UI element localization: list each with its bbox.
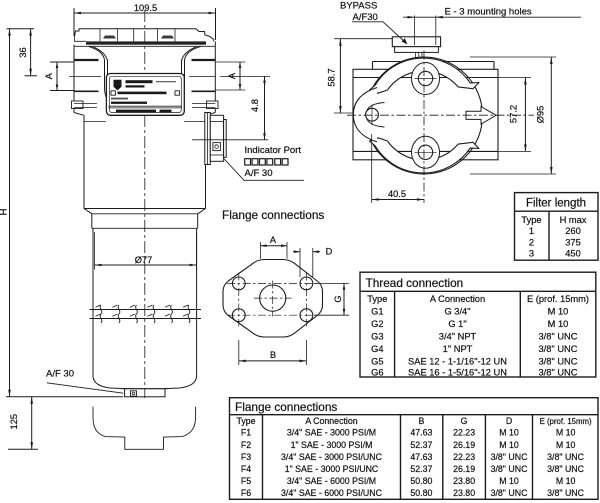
svg-text:36: 36 (18, 47, 28, 57)
svg-text:Type: Type (367, 294, 387, 304)
svg-text:G1: G1 (371, 307, 383, 317)
svg-text:M 10: M 10 (499, 440, 519, 450)
svg-text:SAE 16 - 1-5/16"-12 UN: SAE 16 - 1-5/16"-12 UN (408, 368, 507, 378)
svg-text:M 10: M 10 (499, 476, 519, 486)
svg-text:Type: Type (521, 215, 541, 225)
svg-text:M 10: M 10 (556, 476, 576, 486)
svg-text:3/8" UNC: 3/8" UNC (547, 488, 585, 498)
svg-text:22.23: 22.23 (453, 452, 475, 462)
svg-text:2: 2 (529, 237, 534, 247)
svg-text:E (prof. 15mm): E (prof. 15mm) (540, 417, 592, 426)
svg-text:52.37: 52.37 (410, 464, 432, 474)
svg-text:26.19: 26.19 (453, 464, 475, 474)
svg-text:1" SAE - 3000 PSI/M: 1" SAE - 3000 PSI/M (291, 440, 373, 450)
svg-text:M 10: M 10 (499, 428, 519, 438)
svg-text:H: H (0, 209, 9, 216)
svg-text:4.8: 4.8 (250, 99, 260, 112)
svg-text:52.37: 52.37 (410, 440, 432, 450)
svg-text:A: A (227, 72, 237, 79)
svg-text:F4: F4 (241, 464, 251, 474)
svg-text:3/8" UNC: 3/8" UNC (547, 464, 585, 474)
svg-text:3/4" SAE - 6000 PSI/UNC: 3/4" SAE - 6000 PSI/UNC (281, 488, 383, 498)
svg-text:B: B (418, 416, 424, 426)
svg-text:Flange connections: Flange connections (235, 400, 337, 414)
svg-text:M 10: M 10 (556, 428, 576, 438)
svg-text:450: 450 (565, 249, 581, 259)
svg-text:G 3/4": G 3/4" (444, 307, 470, 317)
svg-text:109.5: 109.5 (134, 3, 157, 13)
svg-text:Flange connections: Flange connections (222, 208, 324, 222)
svg-text:G2: G2 (371, 319, 383, 329)
svg-text:47.63: 47.63 (410, 452, 432, 462)
svg-text:260: 260 (565, 226, 581, 236)
svg-text:57.2: 57.2 (509, 105, 519, 123)
svg-text:3: 3 (529, 249, 534, 259)
svg-text:3/8" UNC: 3/8" UNC (491, 452, 529, 462)
svg-text:3/8" UNC: 3/8" UNC (539, 332, 578, 342)
svg-text:A/F 30: A/F 30 (46, 369, 74, 380)
svg-text:M 10: M 10 (548, 307, 569, 317)
svg-text:3/8" UNC: 3/8" UNC (539, 368, 578, 378)
svg-text:G: G (461, 416, 468, 426)
svg-text:1" SAE - 3000 PSI/UNC: 1" SAE - 3000 PSI/UNC (285, 464, 379, 474)
svg-text:3/4" SAE - 3000 PSI/M: 3/4" SAE - 3000 PSI/M (287, 428, 376, 438)
svg-text:1" NPT: 1" NPT (443, 344, 473, 354)
svg-text:A: A (270, 235, 277, 245)
svg-text:BYPASS: BYPASS (340, 1, 377, 12)
svg-text:3/8" UNC: 3/8" UNC (539, 344, 578, 354)
svg-text:3/4" NPT: 3/4" NPT (439, 332, 477, 342)
svg-text:E - 3 mounting holes: E - 3 mounting holes (445, 7, 532, 18)
svg-text:26.19: 26.19 (453, 440, 475, 450)
svg-text:A/F 30: A/F 30 (245, 168, 273, 179)
svg-text:SAE 12 - 1-1/16"-12 UN: SAE 12 - 1-1/16"-12 UN (408, 357, 507, 367)
svg-text:1: 1 (529, 226, 534, 236)
svg-text:Ø95: Ø95 (536, 106, 546, 124)
svg-text:A Connection: A Connection (430, 294, 485, 304)
svg-text:3/8" UNC: 3/8" UNC (491, 488, 529, 498)
svg-text:Type: Type (236, 416, 255, 426)
svg-text:G4: G4 (371, 344, 383, 354)
svg-text:F6: F6 (241, 488, 251, 498)
svg-text:Ø77: Ø77 (135, 255, 153, 265)
svg-text:Indicator Port: Indicator Port (245, 145, 302, 156)
svg-text:3/8" UNC: 3/8" UNC (491, 464, 529, 474)
svg-text:M 10: M 10 (548, 319, 569, 329)
svg-text:G3: G3 (371, 332, 383, 342)
svg-text:D: D (326, 247, 333, 257)
svg-text:Thread connection: Thread connection (366, 276, 464, 290)
svg-text:G 1": G 1" (448, 319, 466, 329)
svg-text:23.80: 23.80 (453, 476, 475, 486)
svg-text:375: 375 (565, 237, 581, 247)
svg-text:F3: F3 (241, 452, 251, 462)
svg-text:125: 125 (9, 414, 19, 430)
svg-text:3/8" UNC: 3/8" UNC (539, 357, 578, 367)
svg-text:D: D (506, 416, 512, 426)
svg-text:G6: G6 (371, 368, 383, 378)
svg-text:A Connection: A Connection (305, 416, 357, 426)
svg-text:H max: H max (560, 215, 587, 225)
svg-text:50.80: 50.80 (410, 488, 432, 498)
svg-text:G5: G5 (371, 357, 383, 367)
svg-text:3/8" UNC: 3/8" UNC (547, 452, 585, 462)
svg-text:F5: F5 (241, 476, 251, 486)
svg-text:Filter length: Filter length (526, 198, 586, 210)
svg-text:F1: F1 (241, 428, 251, 438)
svg-text:23.80: 23.80 (453, 488, 475, 498)
svg-text:47.63: 47.63 (410, 428, 432, 438)
svg-text:A: A (44, 72, 54, 79)
svg-text:E (prof. 15mm): E (prof. 15mm) (527, 294, 589, 304)
svg-text:G: G (333, 295, 343, 302)
svg-text:F2: F2 (241, 440, 251, 450)
svg-text:B: B (270, 350, 276, 360)
svg-text:40.5: 40.5 (388, 189, 406, 199)
svg-text:3/4" SAE - 6000 PSI/M: 3/4" SAE - 6000 PSI/M (287, 476, 376, 486)
svg-text:22.23: 22.23 (453, 428, 475, 438)
svg-text:3/4" SAE - 3000 PSI/UNC: 3/4" SAE - 3000 PSI/UNC (281, 452, 383, 462)
svg-text:M 10: M 10 (556, 440, 576, 450)
svg-text:58.7: 58.7 (327, 68, 337, 86)
svg-text:50.80: 50.80 (410, 476, 432, 486)
